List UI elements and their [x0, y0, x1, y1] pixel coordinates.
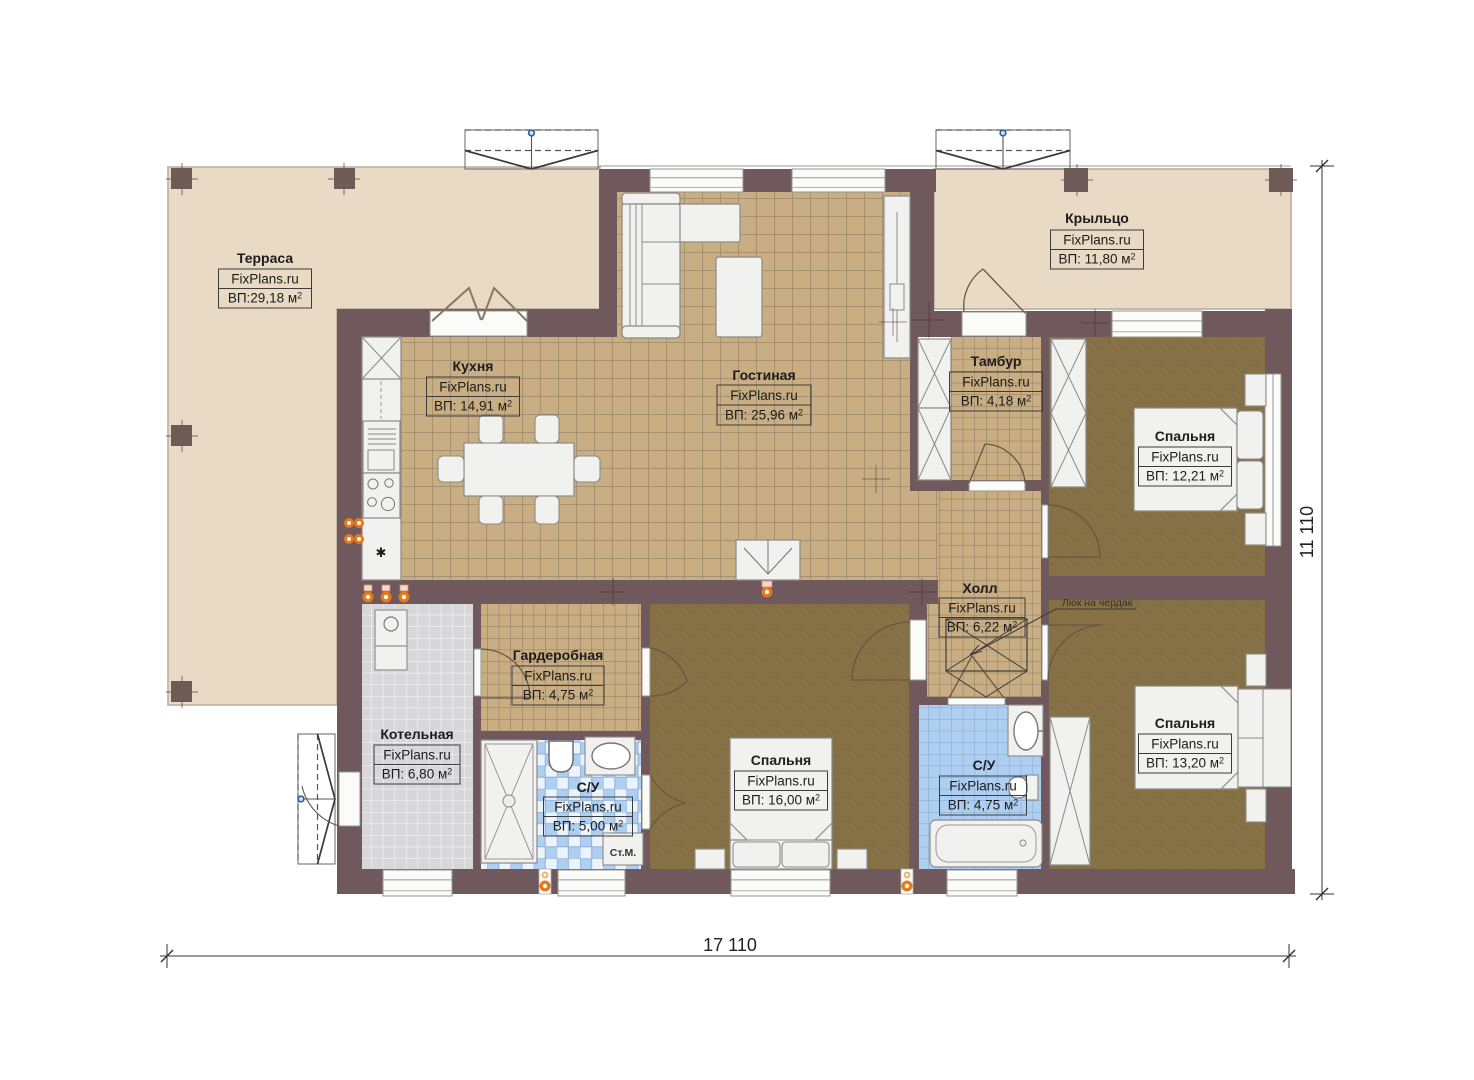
svg-text:FixPlans.ru: FixPlans.ru [730, 388, 798, 403]
svg-text:С/У: С/У [973, 757, 996, 773]
svg-text:Ст.М.: Ст.М. [610, 847, 636, 859]
svg-text:ВП: 4,18 м2: ВП: 4,18 м2 [961, 394, 1032, 409]
svg-text:FixPlans.ru: FixPlans.ru [1151, 450, 1219, 465]
svg-text:ВП: 4,75 м2: ВП: 4,75 м2 [948, 798, 1019, 813]
svg-text:FixPlans.ru: FixPlans.ru [948, 601, 1016, 616]
svg-text:Гостиная: Гостиная [732, 367, 795, 383]
svg-text:Спальня: Спальня [1155, 715, 1215, 731]
svg-text:Люк на чердак: Люк на чердак [1062, 597, 1133, 609]
svg-text:FixPlans.ru: FixPlans.ru [747, 774, 815, 789]
svg-text:Котельная: Котельная [380, 726, 453, 742]
svg-text:✱: ✱ [376, 545, 387, 560]
svg-text:ВП: 12,21 м2: ВП: 12,21 м2 [1146, 469, 1224, 484]
svg-text:FixPlans.ru: FixPlans.ru [554, 800, 622, 815]
svg-text:Спальня: Спальня [1155, 428, 1215, 444]
svg-text:Спальня: Спальня [751, 752, 811, 768]
svg-text:ВП: 5,00 м2: ВП: 5,00 м2 [553, 819, 624, 834]
svg-text:ВП: 11,80 м2: ВП: 11,80 м2 [1058, 252, 1135, 267]
svg-text:FixPlans.ru: FixPlans.ru [383, 748, 451, 763]
svg-text:ВП: 6,22 м2: ВП: 6,22 м2 [947, 620, 1018, 635]
svg-text:FixPlans.ru: FixPlans.ru [962, 375, 1030, 390]
svg-text:FixPlans.ru: FixPlans.ru [231, 272, 299, 287]
svg-text:С/У: С/У [577, 779, 600, 795]
svg-text:FixPlans.ru: FixPlans.ru [439, 380, 507, 395]
svg-text:ВП: 13,20 м2: ВП: 13,20 м2 [1146, 756, 1224, 771]
svg-text:ВП: 14,91 м2: ВП: 14,91 м2 [434, 399, 512, 414]
svg-text:11 110: 11 110 [1297, 506, 1317, 558]
svg-text:ВП:29,18 м2: ВП:29,18 м2 [228, 291, 302, 306]
svg-text:Крыльцо: Крыльцо [1065, 210, 1129, 226]
svg-text:Гардеробная: Гардеробная [513, 647, 604, 663]
svg-text:FixPlans.ru: FixPlans.ru [1151, 737, 1219, 752]
svg-text:Холл: Холл [962, 580, 997, 596]
svg-text:Тамбур: Тамбур [971, 353, 1022, 369]
svg-text:ВП: 6,80 м2: ВП: 6,80 м2 [382, 767, 453, 782]
svg-text:FixPlans.ru: FixPlans.ru [524, 669, 592, 684]
svg-text:Кухня: Кухня [453, 358, 494, 374]
svg-text:ВП: 4,75 м2: ВП: 4,75 м2 [523, 688, 594, 703]
svg-text:ВП: 25,96 м2: ВП: 25,96 м2 [725, 408, 803, 423]
svg-text:ВП: 16,00 м2: ВП: 16,00 м2 [742, 793, 820, 808]
svg-text:Терраса: Терраса [237, 250, 293, 266]
svg-text:FixPlans.ru: FixPlans.ru [1063, 233, 1131, 248]
svg-text:FixPlans.ru: FixPlans.ru [949, 779, 1017, 794]
svg-text:17 110: 17 110 [703, 935, 757, 955]
